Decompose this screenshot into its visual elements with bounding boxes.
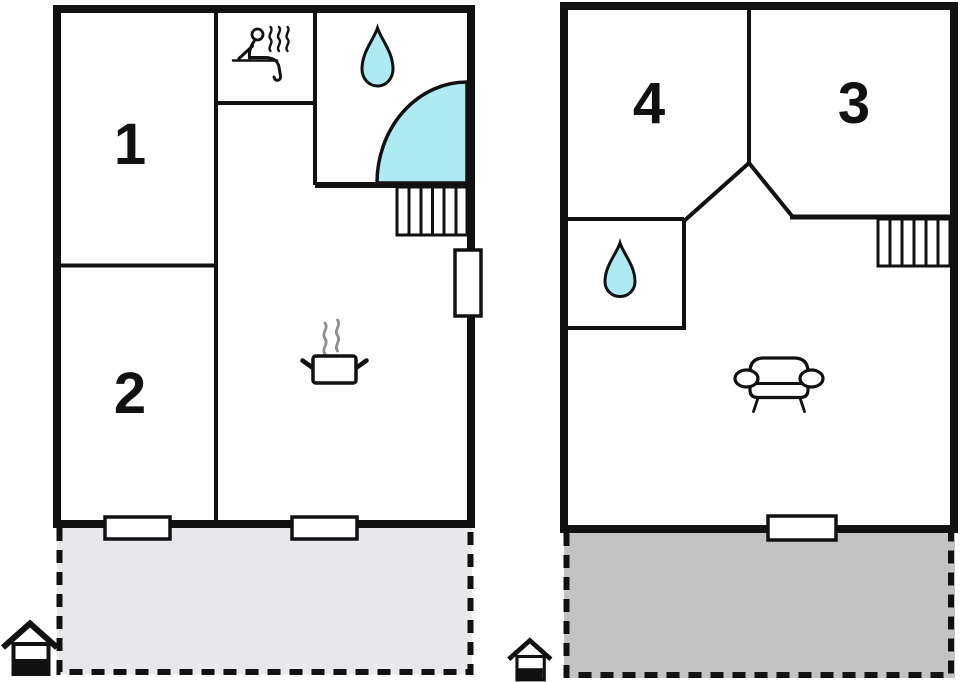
ground-floor-plan bbox=[57, 9, 481, 674]
house-door-band bbox=[519, 668, 543, 679]
floorplan-canvas: 1 2 4 3 bbox=[0, 0, 960, 682]
house-entrance-icon-upper bbox=[509, 641, 551, 680]
room-4-label: 4 bbox=[633, 75, 665, 133]
upper-floor-plan bbox=[564, 6, 955, 678]
room-1-label: 1 bbox=[114, 116, 146, 174]
window-bottom-right bbox=[292, 517, 357, 539]
window-bottom-left bbox=[105, 517, 170, 539]
window-right-wall bbox=[455, 250, 481, 316]
room-2-label: 2 bbox=[114, 365, 146, 423]
terrace-area bbox=[57, 526, 472, 674]
room-3-label: 3 bbox=[838, 75, 870, 133]
balcony-area bbox=[564, 531, 955, 678]
house-entrance-icon-ground bbox=[3, 624, 57, 675]
pot-body bbox=[313, 356, 356, 383]
stairs-icon bbox=[397, 187, 467, 235]
sofa-armrest-left bbox=[735, 370, 758, 387]
sofa-armrest-right bbox=[800, 370, 823, 387]
floorplan-drawing bbox=[0, 0, 960, 682]
window-bottom-upper bbox=[768, 516, 836, 540]
stairs-icon-upper bbox=[878, 219, 950, 266]
house-door-band bbox=[16, 659, 47, 673]
